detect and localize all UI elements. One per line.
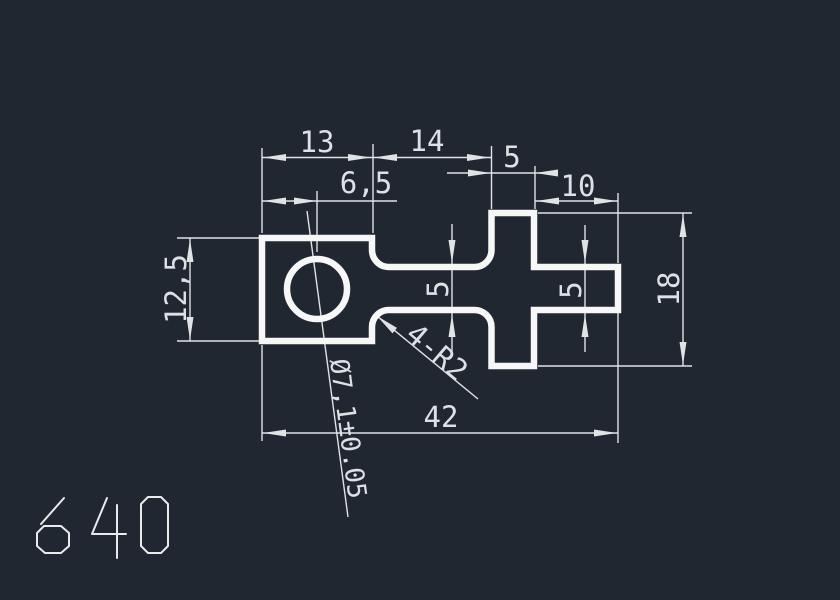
cad-viewport[interactable]: 13 14 5 10 6,5 42 12,5 5 5 18 4-R2 Ø7,1±… — [0, 0, 840, 600]
arrowhead — [449, 314, 456, 337]
arrowhead — [680, 342, 687, 365]
arrowhead — [467, 154, 490, 161]
dim-hole-offset-label: 6,5 — [340, 166, 392, 200]
dim-stub-height-label: 5 — [554, 281, 588, 298]
dim-stub-length-label: 10 — [561, 169, 596, 203]
arrowhead — [449, 240, 456, 263]
dim-block-width-label: 13 — [300, 125, 335, 159]
dim-neck-length-label: 14 — [410, 124, 445, 158]
fillet-note-label: 4-R2 — [399, 316, 474, 387]
arrowhead — [594, 430, 617, 437]
drawing-number: 640 — [37, 497, 168, 558]
arrowhead — [263, 154, 286, 161]
arrowhead — [348, 154, 371, 161]
arrowhead — [582, 240, 589, 263]
arrowhead — [294, 198, 317, 205]
arrowhead — [680, 214, 687, 237]
dim-block-height-label: 12,5 — [159, 254, 193, 324]
arrowhead — [594, 198, 617, 205]
arrowhead — [468, 170, 491, 177]
stick-digit-4 — [92, 498, 126, 558]
dim-neck-height-label: 5 — [421, 280, 455, 297]
arrowhead — [263, 430, 286, 437]
stick-digit-6 — [37, 498, 69, 553]
stick-digit-0 — [141, 497, 168, 553]
drawing-canvas: 13 14 5 10 6,5 42 12,5 5 5 18 4-R2 Ø7,1±… — [0, 0, 840, 600]
arrowhead — [582, 314, 589, 337]
dim-cross-bar-width-label: 5 — [503, 140, 520, 174]
dim-cross-height-label: 18 — [652, 272, 686, 307]
dim-overall-length-label: 42 — [424, 400, 459, 434]
arrowhead — [374, 154, 397, 161]
hole-diameter-label: Ø7,1±0.05 — [323, 357, 372, 501]
arrowhead — [263, 198, 286, 205]
arrowhead — [535, 170, 558, 177]
arrowhead — [536, 198, 559, 205]
